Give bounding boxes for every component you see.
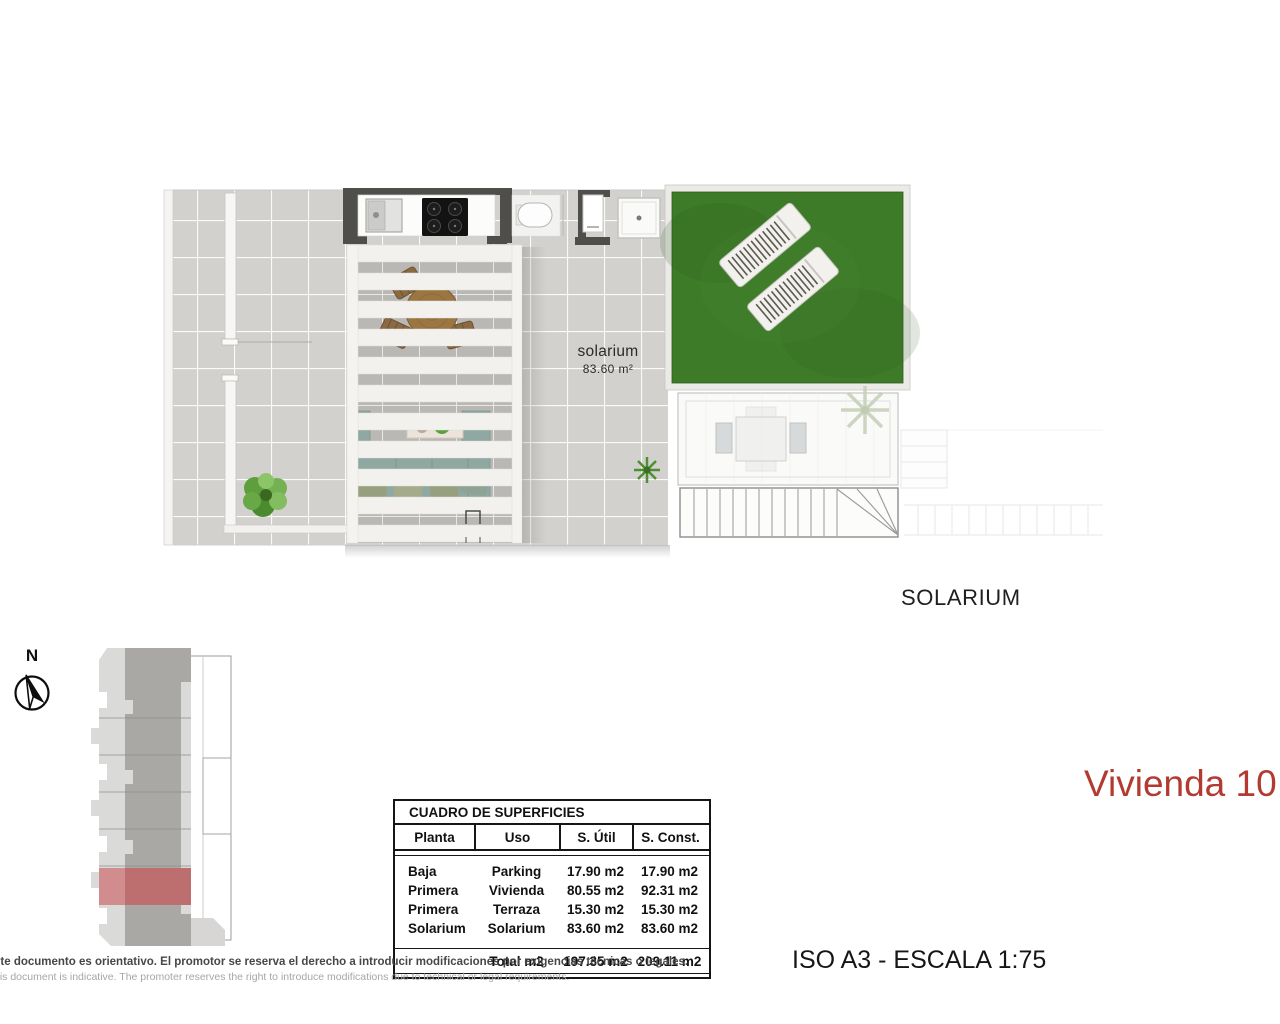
cell-util: 15.30 m2 [559,902,632,917]
col-sconst: S. Const. [632,825,707,849]
scale-caption: ISO A3 - ESCALA 1:75 [792,946,1046,975]
table-row: Solarium Solarium 83.60 m2 83.60 m2 [395,919,709,938]
cell-util: 80.55 m2 [559,883,632,898]
highlighted-unit [99,868,125,905]
col-sutil: S. Útil [559,825,632,849]
plan-sheet: solarium 83.60 m² SOLARIUM N [0,0,1280,1024]
table-row: Primera Terraza 15.30 m2 15.30 m2 [395,900,709,919]
highlighted-unit [125,868,191,905]
disclaimer-en: his document is indicative. The promoter… [0,970,554,984]
room-label: solarium 83.60 m² [556,343,660,376]
north-compass: N [8,646,56,723]
pergola-slats [347,245,522,543]
cell-const: 92.31 m2 [632,883,707,898]
table-row: Primera Vivienda 80.55 m2 92.31 m2 [395,881,709,900]
grass-lawn [660,185,920,390]
shower-tray [618,198,660,238]
cell-util: 17.90 m2 [559,864,632,879]
cell-const: 17.90 m2 [632,864,707,879]
north-compass-icon [8,666,56,718]
cell-planta: Solarium [395,921,474,936]
north-label: N [8,646,56,666]
lower-terrace-ghost [678,386,898,485]
disclaimer: ste documento es orientativo. El promoto… [0,955,554,984]
neighbour-ghost [901,430,1103,535]
plan-shadow [345,545,670,558]
surfaces-table-title: CUADRO DE SUPERFICIES [395,801,709,825]
surfaces-table-body: Baja Parking 17.90 m2 17.90 m2 Primera V… [395,856,709,938]
surfaces-table: CUADRO DE SUPERFICIES Planta Uso S. Útil… [393,799,711,979]
room-name: solarium [556,343,660,361]
col-planta: Planta [395,825,474,849]
cell-uso: Vivienda [474,883,559,898]
cell-uso: Parking [474,864,559,879]
floor-caption: SOLARIUM [901,585,1021,611]
table-row: Baja Parking 17.90 m2 17.90 m2 [395,862,709,881]
surfaces-table-header: Planta Uso S. Útil S. Const. [395,825,709,851]
site-plan-key [85,640,245,958]
cell-util: 83.60 m2 [559,921,632,936]
disclaimer-es: ste documento es orientativo. El promoto… [0,955,554,970]
pergola-shadow [522,247,546,543]
cooktop [422,198,468,236]
cell-planta: Primera [395,902,474,917]
col-uso: Uso [474,825,559,849]
dwelling-title: Vivienda 10 [1084,763,1277,805]
cell-const: 83.60 m2 [632,921,707,936]
cell-planta: Primera [395,883,474,898]
cell-const: 15.30 m2 [632,902,707,917]
staircase [680,488,898,537]
cell-planta: Baja [395,864,474,879]
kitchen-sink [366,199,402,232]
toilet [516,203,552,227]
cell-uso: Solarium [474,921,559,936]
palm-plant [841,386,889,434]
cell-uso: Terraza [474,902,559,917]
room-area: 83.60 m² [556,362,660,376]
